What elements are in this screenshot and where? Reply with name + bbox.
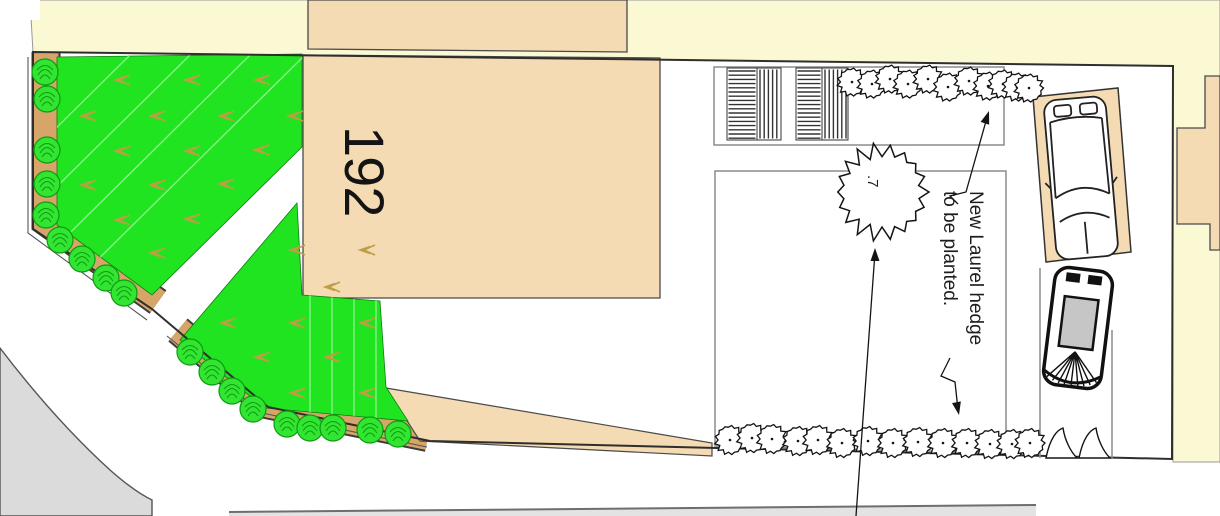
house-number-label: 192 <box>332 126 397 216</box>
building-neighbor-top <box>308 0 627 52</box>
kerb-strip <box>229 505 1036 516</box>
hedge-annotation-line1: New Laurel hedge <box>962 191 988 345</box>
road-gray-corner <box>0 348 152 516</box>
hedge-annotation-line2: to be planted. <box>936 191 962 345</box>
windshield-glass <box>1059 296 1099 350</box>
road-notch <box>26 0 40 20</box>
car-on-driveway <box>1042 266 1114 390</box>
site-plan-drawing <box>0 0 1220 516</box>
hedge-annotation: New Laurel hedge to be planted. <box>936 191 988 345</box>
gate-symbols <box>1046 428 1110 458</box>
site-plan: 192 New Laurel hedge to be planted. .7 <box>0 0 1220 516</box>
tree-number-label: .7 <box>864 175 881 188</box>
